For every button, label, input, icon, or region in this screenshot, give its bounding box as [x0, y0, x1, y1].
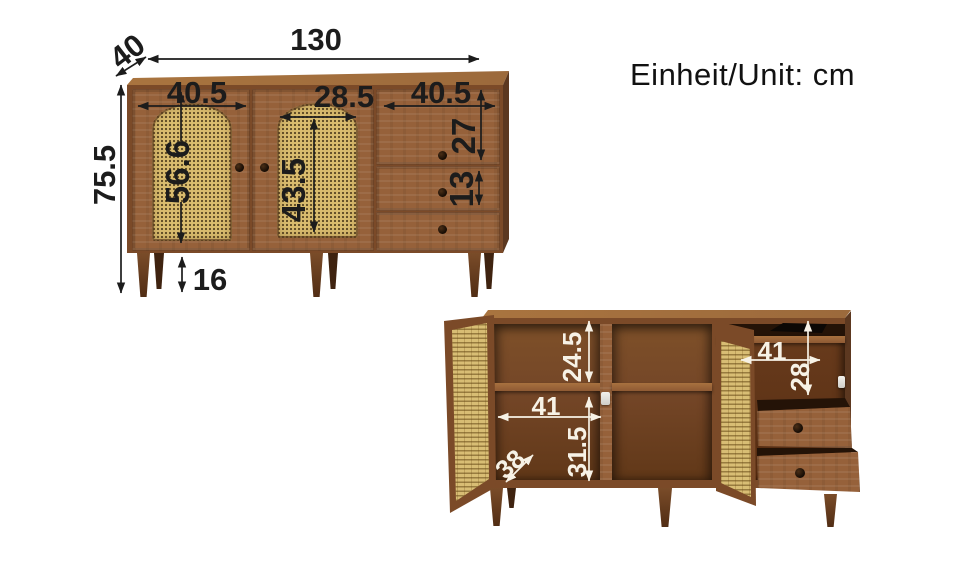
leg	[507, 488, 516, 508]
leg	[328, 253, 338, 289]
unit-label: Einheit/Unit: cm	[630, 57, 890, 93]
leg	[484, 253, 494, 289]
open-upper-drawer-knob	[793, 423, 803, 433]
middle-compartment-shelf	[612, 383, 712, 391]
dim-left-door-width: 40.5	[157, 74, 237, 110]
door-catch	[601, 392, 610, 405]
dim-overall-width: 130	[276, 21, 356, 57]
leg	[824, 494, 837, 527]
middle-door-knob	[260, 163, 269, 172]
dim-overall-height: 75.5	[86, 135, 122, 215]
leg	[154, 253, 164, 289]
door-catch-right	[838, 376, 845, 388]
product-dimension-diagram: 130 40 75.5 40.5 56.6 28.5 43.5 40.5 27 …	[0, 0, 960, 587]
dim-bottom-compartment-height: 31.5	[562, 417, 592, 487]
middle-compartment	[612, 324, 712, 480]
dim-middle-panel-width: 28.5	[304, 78, 384, 114]
leg	[137, 253, 150, 297]
leg	[310, 253, 323, 297]
dim-middle-drawer-height: 13	[443, 149, 479, 229]
cabinet-side-face	[502, 71, 510, 253]
dim-top-shelf-height: 24.5	[557, 322, 587, 392]
leg	[468, 253, 481, 297]
left-door-knob	[235, 163, 244, 172]
middle-drawer	[376, 166, 500, 211]
open-cabinet-top-face	[482, 310, 852, 318]
closed-view	[0, 0, 520, 310]
dim-middle-panel-height: 43.5	[275, 150, 311, 230]
dim-left-panel-height: 56.6	[159, 132, 195, 212]
dim-leg-height: 16	[170, 261, 250, 297]
leg	[658, 488, 672, 527]
dim-right-compartment-height: 28	[785, 342, 815, 412]
open-lower-drawer-knob	[795, 468, 805, 478]
